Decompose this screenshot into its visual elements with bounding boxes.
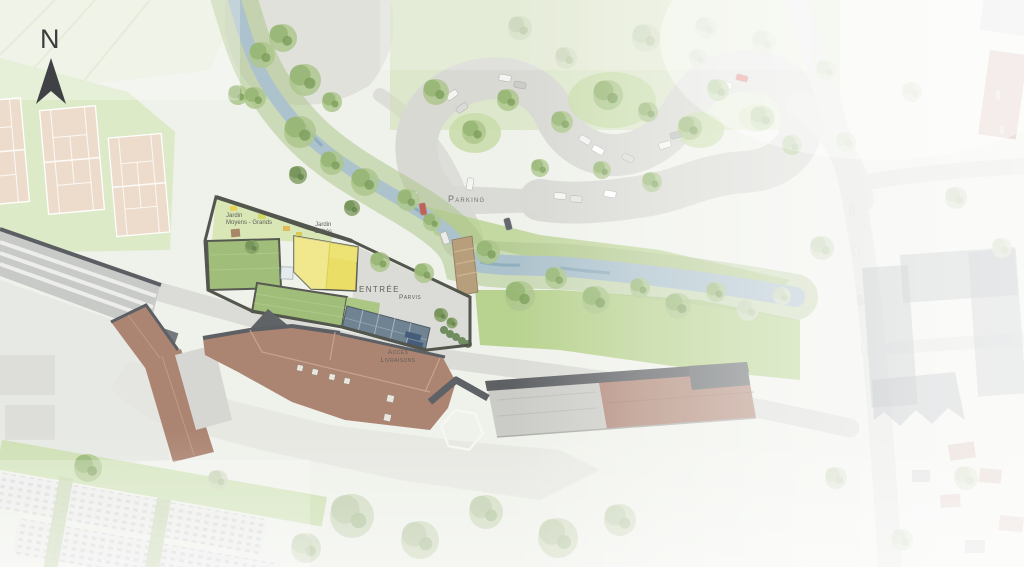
fade-overlay (0, 0, 1024, 567)
site-plan-canvas (0, 0, 1024, 567)
north-label: N (40, 24, 61, 55)
entrance-label: Entrée (359, 285, 400, 294)
garden-main-label: Jardin Moyens - Grands (226, 213, 272, 227)
garden-small-line1: Jardin (315, 222, 332, 229)
delivery-access-label: Accès Livraisons (378, 349, 418, 364)
garden-main-line2: Moyens - Grands (226, 220, 272, 227)
garden-small-label: Jardin Bébés (315, 222, 332, 236)
delivery-line1: Accès (378, 349, 418, 357)
forecourt-label: Parvis (399, 294, 421, 301)
parking-label: Parking (448, 194, 485, 204)
garden-main-line1: Jardin (226, 213, 272, 220)
garden-small-line2: Bébés (315, 229, 332, 236)
site-plan-map: N Jardin Moyens - Grands Jardin Bébés En… (0, 0, 1024, 567)
delivery-line2: Livraisons (378, 357, 418, 365)
